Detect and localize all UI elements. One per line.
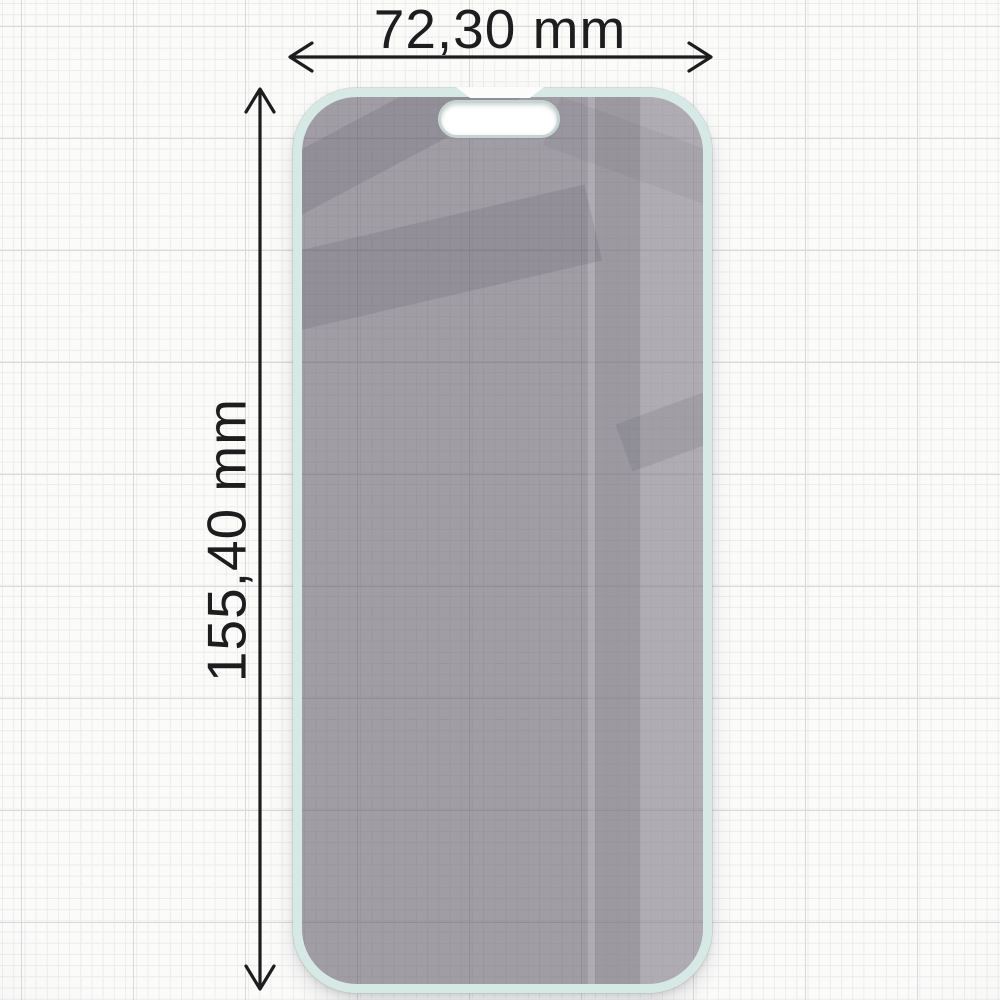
privacy-glass-surface [302,97,703,984]
glass-shade-column [595,97,640,984]
height-dimension-label: 155,40 mm [200,398,255,682]
diagram-canvas: 72,30 mm 155,40 mm [0,0,1000,1000]
reflection-stripe [302,185,602,337]
speaker-notch-cutout [456,87,544,98]
camera-pill-cutout [438,100,560,138]
screen-protector [293,88,712,993]
width-dimension-label: 72,30 mm [374,2,627,57]
